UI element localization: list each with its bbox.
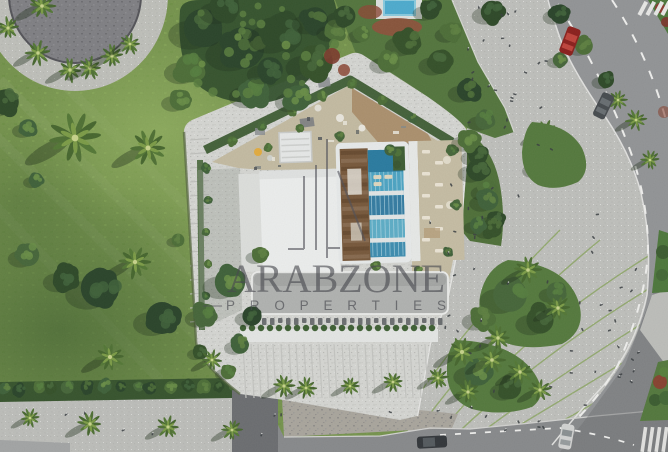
svg-text:PROPERTIES: PROPERTIES [226,298,461,313]
svg-text:ARABZONE: ARABZONE [227,256,445,301]
